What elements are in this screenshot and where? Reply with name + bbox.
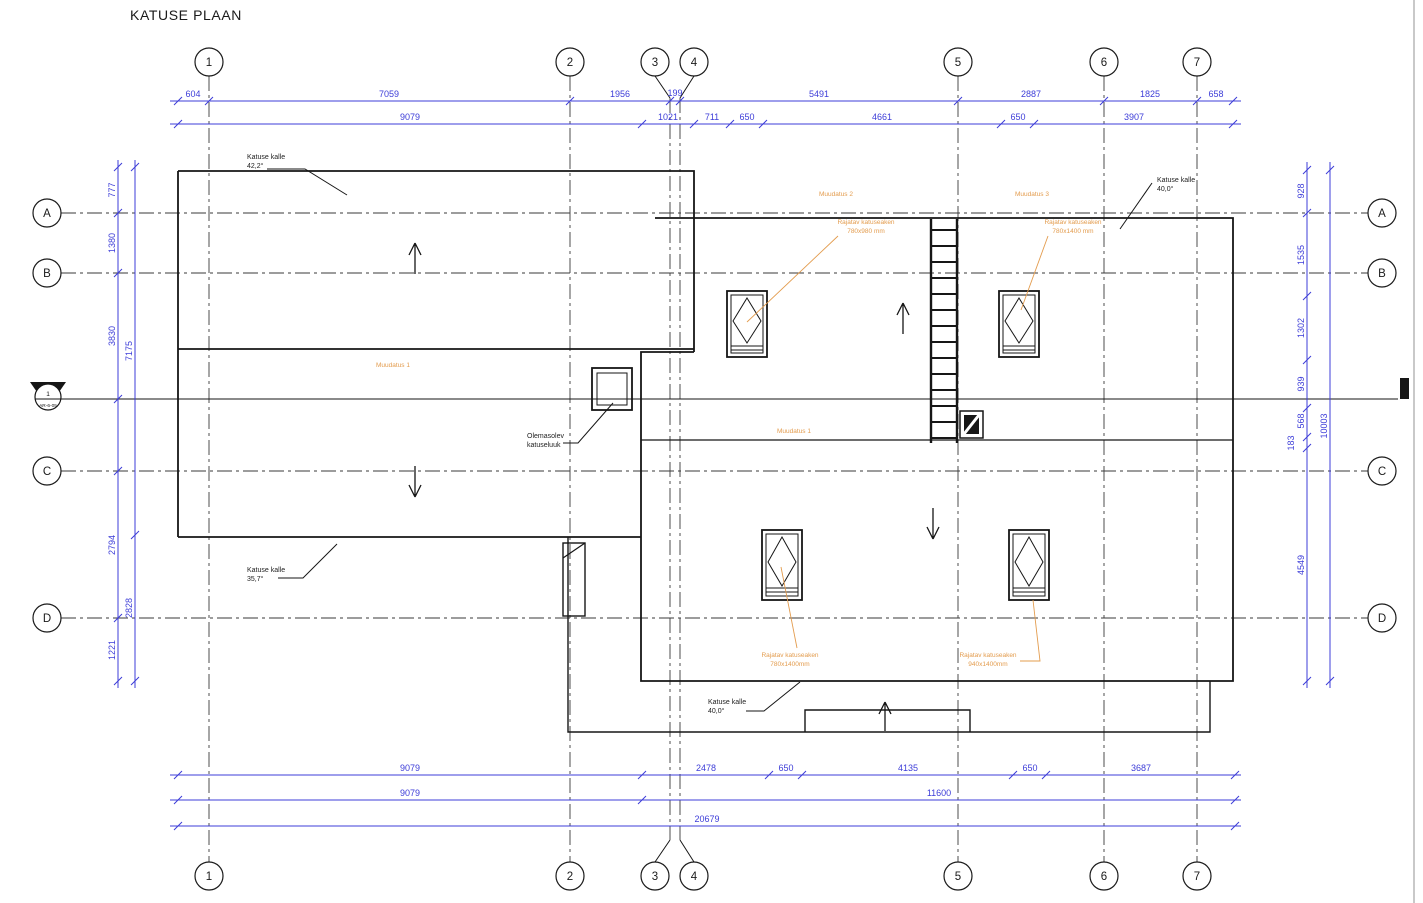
slope-arrow-up-right	[897, 303, 909, 334]
dim-value: 939	[1296, 376, 1306, 391]
dim-value: 10003	[1319, 413, 1329, 438]
dim-value: 2794	[107, 535, 117, 555]
slope-s-label: Katuse kalle	[708, 699, 746, 706]
grid-label: A	[1378, 208, 1386, 220]
roof-plan-page: 1 AR-6-05	[0, 0, 1423, 903]
skylight-1-label-2: 780x980 mm	[847, 228, 885, 235]
grid-label: 5	[955, 57, 961, 69]
dim-value: 1825	[1140, 89, 1160, 99]
skylight-1-label-1: Rajatav katuseaken	[837, 219, 894, 226]
slope-nw-value: 42,2°	[247, 162, 264, 170]
grid-3-4-bent-leaders	[655, 76, 694, 862]
grid-lines	[61, 76, 1368, 862]
left-building-outline	[178, 171, 694, 537]
dim-value: 7175	[124, 341, 134, 361]
dim-value: 1302	[1296, 318, 1306, 338]
revision-muudatus-3: Muudatus 3	[1015, 191, 1049, 198]
leader-slope-ne	[1120, 183, 1152, 229]
roof-plan-canvas: 1 AR-6-05	[0, 0, 1423, 903]
section-cut: 1 AR-6-05	[30, 378, 1409, 410]
dim-value: 650	[1022, 763, 1037, 773]
existing-hatch-label-1: Olemasolev	[527, 433, 564, 440]
grid-label: C	[1378, 466, 1386, 478]
skylight-1-sill	[731, 346, 763, 350]
grid-label: 2	[567, 57, 573, 69]
dim-value: 3687	[1131, 763, 1151, 773]
roof-element-left	[563, 543, 585, 616]
skylight-2-label-1: Rajatav katuseaken	[1044, 219, 1101, 226]
grid-label: 6	[1101, 57, 1107, 69]
dim-value: 9079	[400, 763, 420, 773]
slope-arrow-down-right	[927, 508, 939, 539]
skylight-3	[762, 530, 802, 600]
dim-value: 1956	[610, 89, 630, 99]
grid-label: C	[43, 466, 51, 478]
grid-label: D	[43, 613, 51, 625]
grid-label: B	[43, 268, 51, 280]
skylight-3-frame	[762, 530, 802, 600]
skylight-3-sill	[766, 588, 798, 592]
dim-value: 20679	[694, 814, 719, 824]
skylight-2	[999, 291, 1039, 357]
dim-value: 2478	[696, 763, 716, 773]
skylight-1-inner	[731, 295, 763, 353]
dim-value: 11600	[927, 788, 951, 798]
skylight-3-label-2: 780x1400mm	[770, 661, 809, 668]
dim-value: 3907	[1124, 112, 1144, 122]
leader-skylight-3	[781, 567, 797, 648]
grid-label: 6	[1101, 871, 1107, 883]
skylight-2-sill	[1003, 346, 1035, 350]
window-edge	[1413, 0, 1415, 903]
skylight-4-glass	[1015, 537, 1043, 586]
dim-value: 183	[1286, 435, 1296, 450]
dim-value: 1535	[1296, 245, 1306, 265]
skylight-1-glass	[733, 298, 761, 343]
revision-annotations: Muudatus 1 Muudatus 2 Muudatus 3 Muudatu…	[376, 191, 1102, 668]
dim-value: 928	[1296, 183, 1306, 198]
grid-label: 3	[652, 871, 658, 883]
dim-value: 7059	[379, 89, 399, 99]
roof-hatch-inner	[597, 373, 627, 405]
grid-label: 7	[1194, 871, 1200, 883]
revision-muudatus-2: Muudatus 2	[819, 191, 853, 198]
ladder-rails	[931, 219, 957, 443]
dimension-lines	[114, 97, 1334, 830]
dim-value: 2828	[124, 598, 134, 618]
skylight-4-label-1: Rajatav katuseaken	[959, 652, 1016, 659]
dim-value: 9079	[400, 112, 420, 122]
porch-outline	[568, 537, 1210, 732]
grid-label: 5	[955, 871, 961, 883]
dim-value: 4135	[898, 763, 918, 773]
leader-skylight-1	[747, 236, 838, 322]
slope-arrow-up-left	[409, 243, 421, 274]
skylight-4	[1009, 530, 1049, 600]
leader-skylight-4	[1020, 600, 1040, 661]
skylight-2-label-2: 780x1400 mm	[1052, 228, 1093, 235]
chimney-symbol	[960, 411, 983, 438]
slope-s-value: 40,0°	[708, 707, 725, 715]
slope-ne-label: Katuse kalle	[1157, 177, 1195, 184]
right-building-outline	[641, 218, 1233, 681]
slope-sw-value: 35,7°	[247, 575, 264, 583]
skylight-2-inner	[1003, 295, 1035, 353]
dim-value: 711	[705, 112, 719, 122]
grid-label: 4	[691, 57, 698, 69]
slope-arrow-up-porch	[879, 702, 891, 731]
dim-value: 4549	[1296, 555, 1306, 575]
skylight-4-label-2: 940x1400mm	[968, 661, 1007, 668]
skylight-2-frame	[999, 291, 1039, 357]
slope-sw-label: Katuse kalle	[247, 567, 285, 574]
grid-label: A	[43, 208, 51, 220]
skylight-2-glass	[1005, 298, 1033, 343]
black-annotations: Katuse kalle 42,2° Katuse kalle 40,0° Ka…	[247, 154, 1195, 715]
grid-label: 1	[206, 57, 212, 69]
skylight-4-frame	[1009, 530, 1049, 600]
ladder-rungs	[931, 230, 957, 438]
dim-value: 1380	[107, 233, 117, 253]
revision-muudatus-right: Muudatus 1	[777, 428, 811, 435]
grid-label: 2	[567, 871, 573, 883]
dim-value: 650	[778, 763, 793, 773]
dim-value: 1021	[658, 112, 678, 122]
dim-value: 604	[185, 89, 200, 99]
section-marker-bar-right	[1400, 378, 1409, 399]
roof-element-diagonal	[563, 543, 585, 558]
dim-value: 9079	[400, 788, 420, 798]
existing-hatch-label-2: katuseluuk	[527, 442, 561, 449]
dim-value: 4661	[872, 112, 892, 122]
dim-value: 1221	[107, 640, 117, 660]
leader-slope-nw	[267, 169, 347, 195]
dim-value: 3830	[107, 326, 117, 346]
dim-value: 199	[667, 88, 682, 98]
dim-value: 2887	[1021, 89, 1041, 99]
slope-nw-label: Katuse kalle	[247, 154, 285, 161]
grid-label: D	[1378, 613, 1386, 625]
grid-label: 3	[652, 57, 658, 69]
skylight-3-label-1: Rajatav katuseaken	[761, 652, 818, 659]
grid-label: 4	[691, 871, 698, 883]
dim-value: 650	[1010, 112, 1025, 122]
section-number: 1	[46, 391, 50, 398]
drawing-title: KATUSE PLAAN	[130, 7, 242, 23]
revision-muudatus-left: Muudatus 1	[376, 362, 410, 369]
skylight-1	[727, 291, 767, 357]
skylight-3-glass	[768, 537, 796, 586]
building-outlines	[178, 171, 1233, 732]
grid-label: 7	[1194, 57, 1200, 69]
skylight-4-sill	[1013, 588, 1045, 592]
leader-slope-s	[746, 682, 800, 711]
leader-existing-hatch	[563, 403, 613, 443]
skylight-1-frame	[727, 291, 767, 357]
grid-label: B	[1378, 268, 1386, 280]
dim-value: 777	[107, 182, 117, 197]
dim-value: 650	[739, 112, 754, 122]
dim-value: 5491	[809, 89, 829, 99]
leader-slope-sw	[278, 544, 337, 578]
grid-label: 1	[206, 871, 212, 883]
dim-value: 568	[1296, 413, 1306, 428]
slope-ne-value: 40,0°	[1157, 185, 1174, 193]
dim-value: 658	[1208, 89, 1223, 99]
roof-ladder	[931, 219, 957, 443]
section-sheet-ref: AR-6-05	[39, 403, 57, 409]
slope-arrows	[409, 243, 939, 731]
